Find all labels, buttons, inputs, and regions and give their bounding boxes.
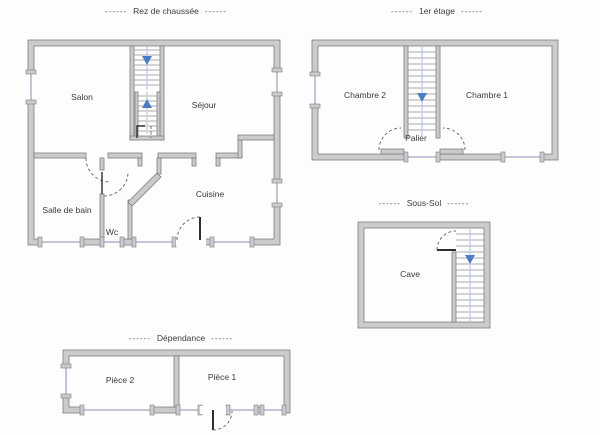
outbuilding-title: ------ Dépendance ------ bbox=[129, 333, 233, 343]
title-dashes: ------ bbox=[205, 7, 227, 16]
room-label-piece1: Pièce 1 bbox=[208, 372, 236, 382]
room-label-chambre1: Chambre 1 bbox=[466, 90, 508, 100]
ground-floor-plan bbox=[26, 40, 282, 247]
basement-title-label: Sous-Sol bbox=[407, 198, 442, 208]
first-floor-title-label: 1er étage bbox=[419, 6, 455, 16]
room-label-wc: Wc bbox=[106, 227, 118, 237]
first-floor-title: ------ 1er étage ------ bbox=[391, 6, 483, 16]
room-label-salon: Salon bbox=[71, 92, 93, 102]
room-label-chambre2: Chambre 2 bbox=[344, 90, 386, 100]
title-dashes: ------ bbox=[129, 334, 151, 343]
title-dashes: ------ bbox=[105, 7, 127, 16]
room-label-cave: Cave bbox=[400, 269, 420, 279]
title-dashes: ------ bbox=[391, 7, 413, 16]
first-floor-plan bbox=[310, 40, 558, 162]
title-dashes: ------ bbox=[379, 199, 401, 208]
outbuilding-walls bbox=[63, 350, 290, 413]
room-label-sejour: Séjour bbox=[192, 100, 217, 110]
basement-plan bbox=[358, 222, 490, 328]
room-label-palier: Palier bbox=[405, 133, 427, 143]
outbuilding-plan bbox=[61, 350, 290, 430]
floor-plan-canvas: ------ Rez de chaussée ------ ------ 1er… bbox=[0, 0, 600, 435]
title-dashes: ------ bbox=[211, 334, 233, 343]
title-dashes: ------ bbox=[447, 199, 469, 208]
room-label-salle-de-bain: Salle de bain bbox=[42, 205, 91, 215]
room-label-piece2: Pièce 2 bbox=[106, 375, 134, 385]
room-label-cuisine: Cuisine bbox=[196, 189, 224, 199]
ground-floor-title: ------ Rez de chaussée ------ bbox=[105, 6, 227, 16]
outbuilding-title-label: Dépendance bbox=[157, 333, 205, 343]
floor-plan-drawing bbox=[0, 0, 600, 435]
title-dashes: ------ bbox=[461, 7, 483, 16]
basement-title: ------ Sous-Sol ------ bbox=[379, 198, 469, 208]
ground-floor-title-label: Rez de chaussée bbox=[133, 6, 199, 16]
